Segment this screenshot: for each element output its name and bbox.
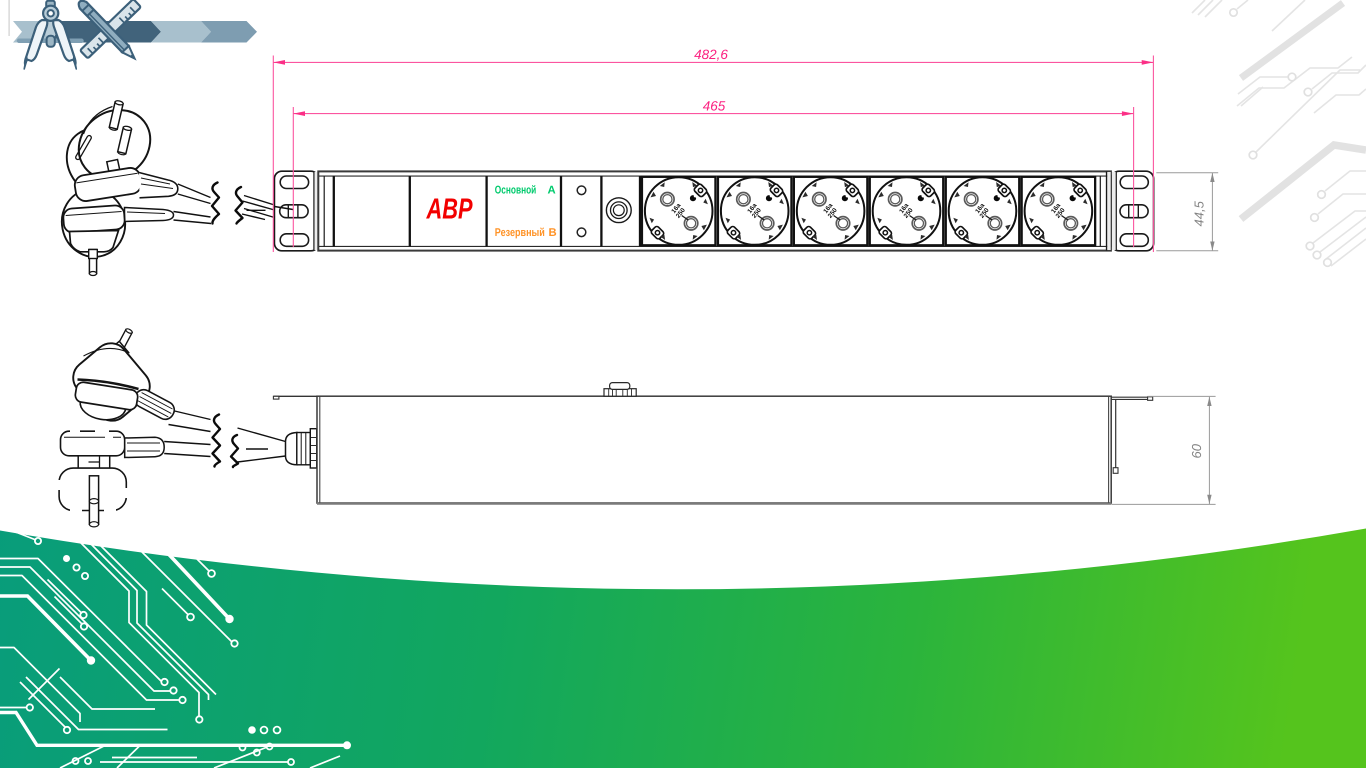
svg-text:АВР: АВР [426,194,473,226]
svg-text:B: B [549,227,557,239]
svg-text:44,5: 44,5 [1192,200,1207,226]
svg-text:Резервный: Резервный [495,227,545,239]
svg-text:А: А [548,185,556,197]
svg-text:60: 60 [1189,443,1204,458]
svg-text:Основной: Основной [495,185,537,197]
svg-text:465: 465 [703,98,726,113]
svg-text:482,6: 482,6 [694,47,728,62]
